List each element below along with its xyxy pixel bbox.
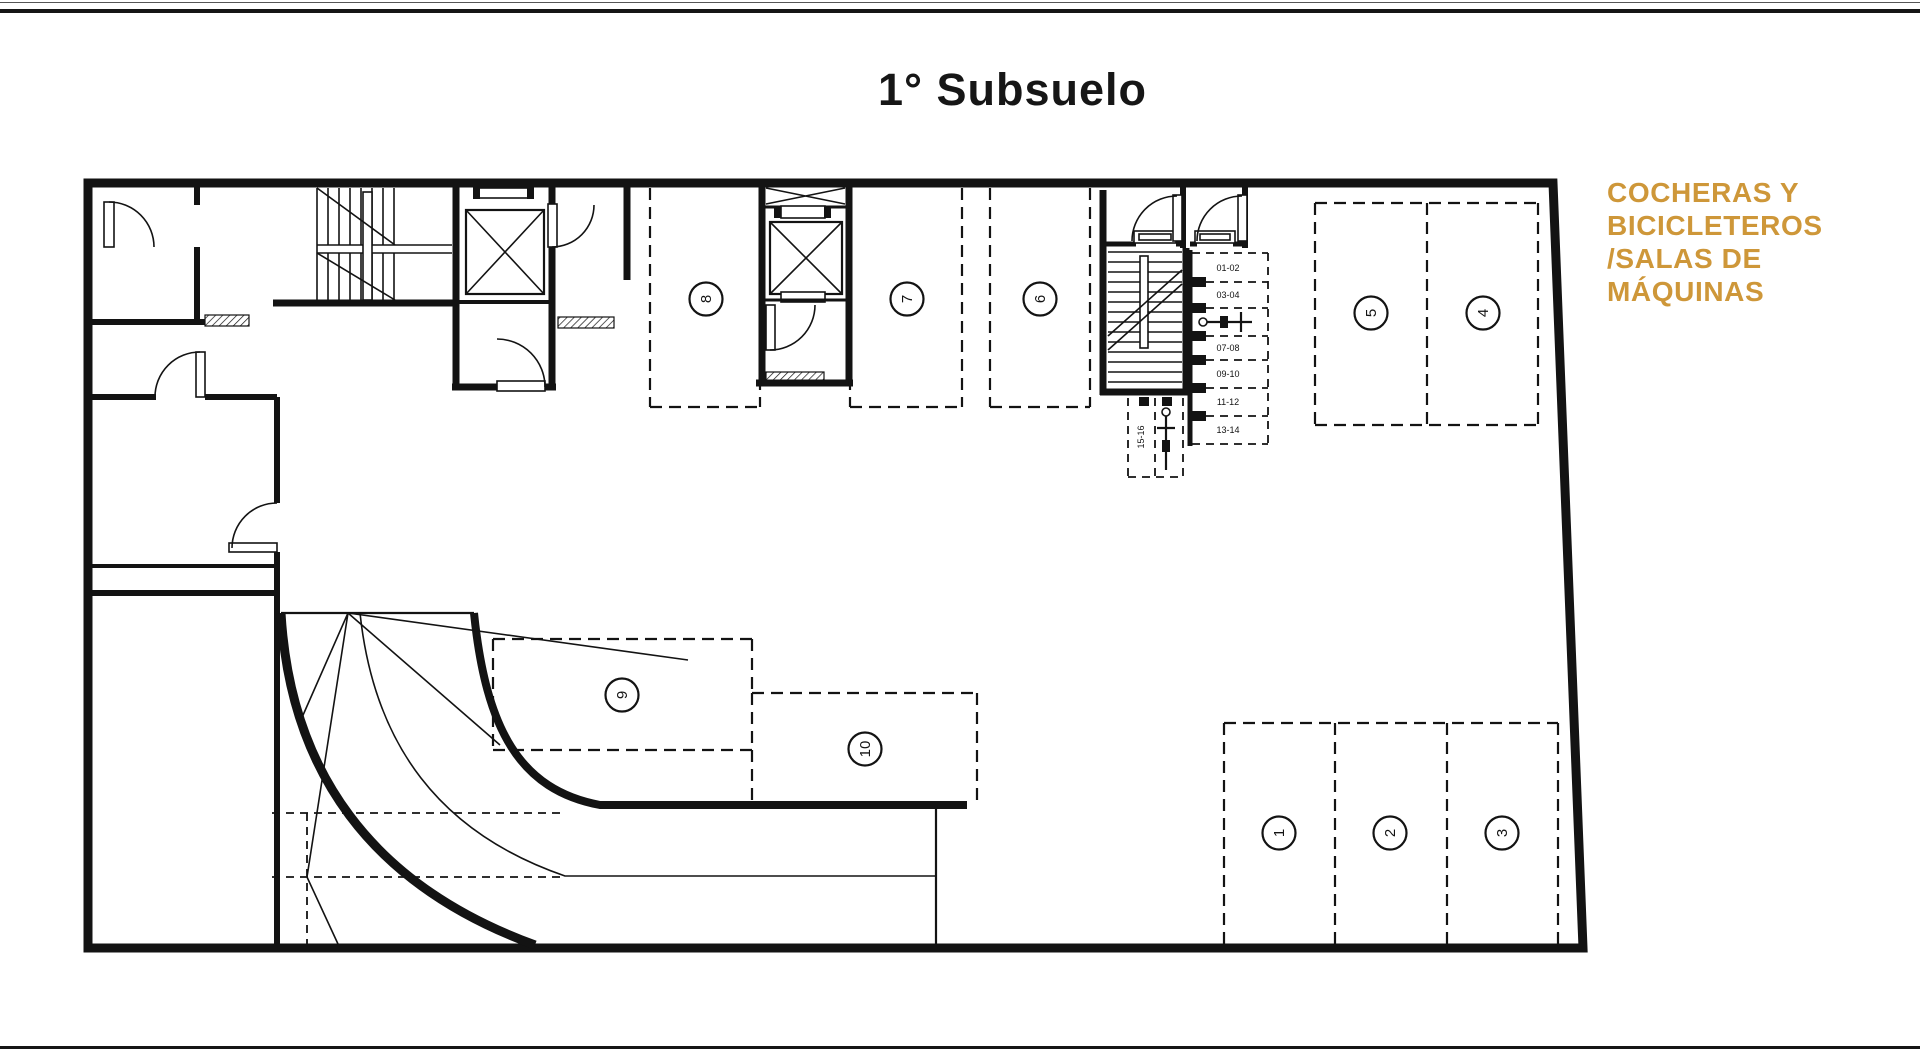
- parking-number-4: 4: [1475, 309, 1492, 317]
- bicycle-icon-horizontal: [1199, 312, 1252, 332]
- left-rooms-walls: [88, 183, 277, 945]
- ramp: [272, 613, 967, 945]
- bike-rack-label-09-10: 09-10: [1216, 369, 1239, 379]
- parking-space-8: 8: [650, 188, 760, 407]
- bike-rack-posts: [1191, 277, 1206, 421]
- bike-rack-label-01-02: 01-02: [1216, 263, 1239, 273]
- bike-stall-label-15-16: 15-16: [1136, 425, 1146, 448]
- parking-space-7: 7: [850, 188, 962, 407]
- floor-plan-page: 1° Subsuelo COCHERAS Y BICICLETEROS /SAL…: [0, 0, 1920, 1058]
- parking-number-7: 7: [899, 295, 916, 303]
- parking-space-9: 9: [493, 639, 752, 750]
- door-left-room-upper: [155, 315, 249, 397]
- bike-rack-label-13-14: 13-14: [1216, 425, 1239, 435]
- building-outer-wall: [88, 183, 1583, 948]
- elevator-1: [458, 183, 594, 387]
- vestibule-room: [558, 183, 627, 328]
- room-below-elevator-2: [756, 305, 853, 383]
- bicycle-icon-vertical: [1157, 408, 1175, 470]
- stair-treads: [328, 188, 394, 300]
- door-top-left-room: [104, 202, 154, 247]
- room-below-elevator-1: [452, 339, 556, 391]
- parking-space-10: 10: [752, 693, 977, 800]
- bike-rack-label-07-08: 07-08: [1216, 343, 1239, 353]
- stair-entry-door-2: [1195, 195, 1247, 243]
- room-door: [497, 339, 545, 391]
- stairwell-secondary: [1100, 183, 1247, 395]
- elevator-1-door: [548, 204, 594, 247]
- bike-rack-column: 01-02 03-04 07-08 09-10 11-12 13-14: [1190, 250, 1268, 446]
- bike-rack-label-03-04: 03-04: [1216, 290, 1239, 300]
- parking-number-6: 6: [1032, 295, 1049, 303]
- parking-number-10: 10: [857, 741, 874, 758]
- door-left-room-lower: [229, 503, 277, 552]
- parking-space-6: 6: [990, 188, 1090, 407]
- bike-stall-lower: 15-16: [1128, 397, 1183, 477]
- parking-number-2: 2: [1382, 829, 1399, 837]
- stair-entry-door-1: [1132, 195, 1182, 243]
- bike-rack-label-11-12: 11-12: [1217, 397, 1239, 407]
- parking-number-8: 8: [698, 295, 715, 303]
- parking-spaces-1-2-3: 1 2 3: [1224, 723, 1558, 944]
- parking-number-9: 9: [614, 691, 631, 699]
- elevator-2: [756, 183, 853, 385]
- stairwell-main: [273, 183, 456, 390]
- floor-plan-drawing: 8 7 6: [0, 0, 1920, 1058]
- parking-number-1: 1: [1271, 829, 1288, 837]
- parking-number-5: 5: [1363, 309, 1380, 317]
- parking-spaces-5-4: 5 4: [1315, 203, 1538, 425]
- parking-number-3: 3: [1494, 829, 1511, 837]
